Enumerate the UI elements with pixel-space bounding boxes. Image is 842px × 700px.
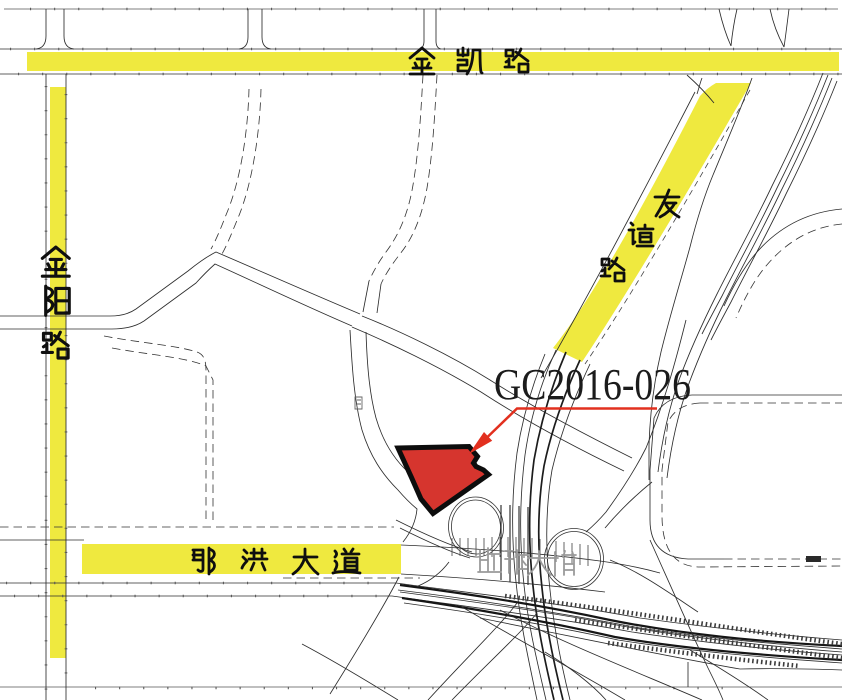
svg-text:GC2016-026: GC2016-026 bbox=[494, 360, 691, 409]
